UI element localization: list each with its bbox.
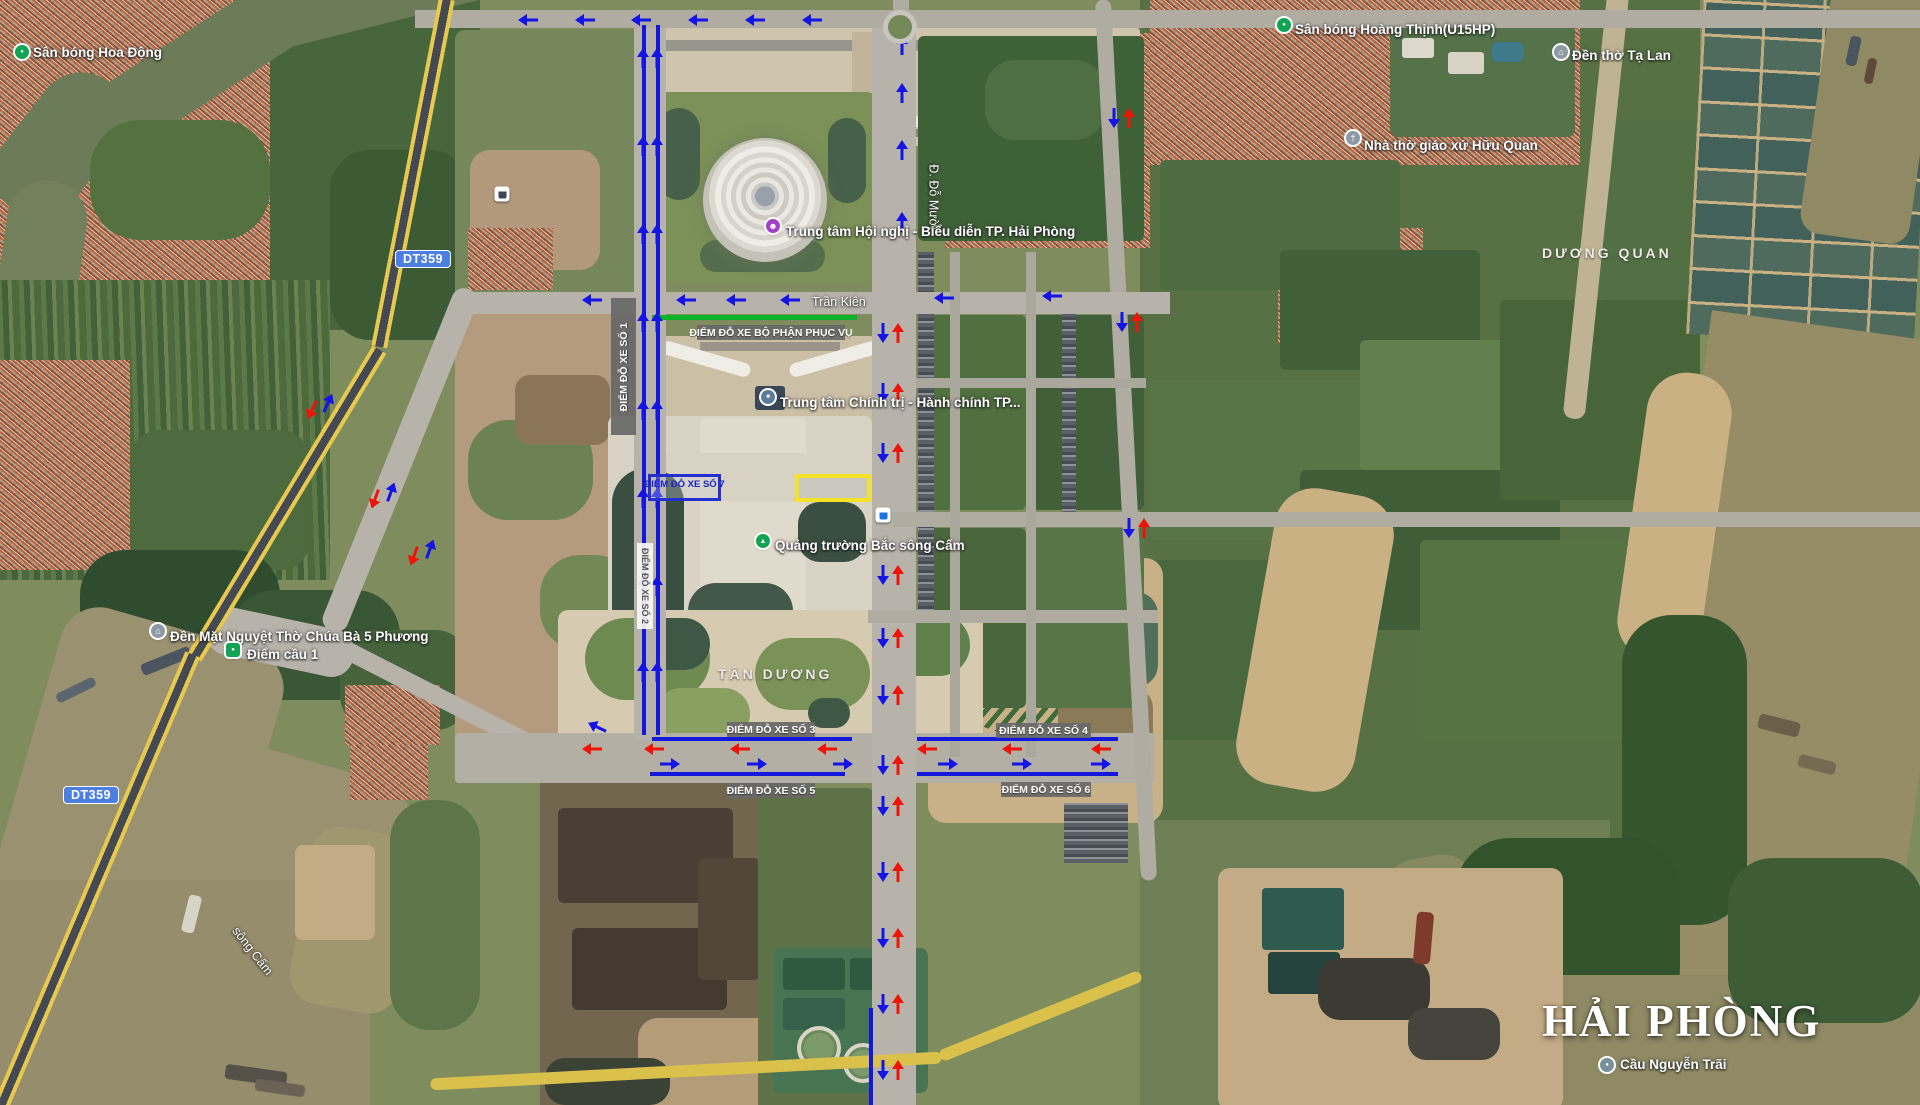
traffic-arrow-blue <box>1122 517 1136 539</box>
poi-label[interactable]: Quảng trường Bắc sông Cấm <box>775 538 965 553</box>
traffic-arrow-blue <box>876 322 890 344</box>
traffic-arrow-blue <box>650 661 664 683</box>
traffic-arrow-blue <box>876 1059 890 1081</box>
watermark-title: HẢI PHÒNG <box>1542 995 1821 1047</box>
traffic-arrow-blue <box>876 795 890 817</box>
traffic-arrow-blue <box>636 223 650 245</box>
traffic-arrow-blue <box>746 757 768 771</box>
traffic-arrow-red <box>891 861 905 883</box>
parking-label: ĐIỂM ĐỖ XE SỐ 7 <box>648 474 721 501</box>
traffic-arrow-blue <box>876 754 890 776</box>
traffic-arrow-red <box>1137 517 1151 539</box>
pin-green-poi-icon[interactable]: ● <box>226 643 240 657</box>
traffic-arrow-red <box>891 322 905 344</box>
traffic-arrow-red <box>891 795 905 817</box>
traffic-arrow-blue <box>650 311 664 333</box>
traffic-arrow-blue <box>876 684 890 706</box>
traffic-arrow-blue <box>650 399 664 421</box>
tree-green-poi-icon[interactable]: ▲ <box>756 534 770 548</box>
traffic-arrow-blue <box>1011 757 1033 771</box>
traffic-arrow-blue <box>876 564 890 586</box>
church-gray-poi-icon[interactable]: † <box>1346 131 1360 145</box>
traffic-arrow-blue <box>801 13 823 27</box>
poi-label[interactable]: Sân bóng Hoàng Thịnh(U15HP) <box>1295 22 1495 37</box>
traffic-arrow-blue <box>630 13 652 27</box>
traffic-arrow-blue <box>636 47 650 69</box>
parking-label: ĐIỂM ĐỖ XE BỘ PHẬN PHỤC VỤ <box>697 325 845 340</box>
traffic-arrow-blue <box>517 13 539 27</box>
traffic-arrow-blue <box>1107 107 1121 129</box>
traffic-arrow-blue <box>876 927 890 949</box>
poi-label[interactable]: Cầu Nguyễn Trãi <box>1620 1057 1727 1072</box>
road-name-label: Trần Kiên <box>812 295 866 309</box>
route-line-blue <box>656 25 660 735</box>
traffic-arrow-red <box>581 742 603 756</box>
parking-label: ĐIỂM ĐỖ XE SỐ 5 <box>727 783 815 798</box>
traffic-arrow-red <box>816 742 838 756</box>
traffic-arrow-red <box>891 684 905 706</box>
poi-label[interactable]: Sân bóng Hoa Động <box>33 45 162 60</box>
traffic-arrow-red <box>891 993 905 1015</box>
traffic-arrow-blue <box>1115 311 1129 333</box>
traffic-arrow-blue <box>650 135 664 157</box>
traffic-arrow-blue <box>779 293 801 307</box>
traffic-arrow-red <box>916 742 938 756</box>
traffic-arrow-red <box>729 742 751 756</box>
traffic-arrow-blue <box>636 311 650 333</box>
route-line-blue <box>869 1008 873 1105</box>
poi-label[interactable]: Điểm cầu 1 <box>247 647 318 662</box>
route-line-blue <box>650 772 845 776</box>
route-line-blue <box>917 772 1118 776</box>
roundabout <box>883 10 917 44</box>
traffic-arrow-blue <box>895 139 909 161</box>
traffic-arrow-blue <box>636 135 650 157</box>
traffic-arrow-blue <box>584 716 610 738</box>
road-badge: DT359 <box>63 786 119 804</box>
traffic-arrow-blue <box>659 757 681 771</box>
bus-glyph <box>879 511 887 520</box>
dot-green-poi-icon[interactable]: ● <box>1277 18 1291 32</box>
parking-label: ĐIỂM ĐỖ XE SỐ 1 <box>611 298 636 435</box>
poi-label[interactable]: Trung tâm Chính trị - Hành chính TP... <box>780 395 1021 410</box>
traffic-arrow-red <box>891 1059 905 1081</box>
traffic-arrow-blue <box>574 13 596 27</box>
satellite-map-view[interactable]: ĐIỂM ĐỖ XE SỐ 1ĐIỂM ĐỖ XE SỐ 2ĐIỂM ĐỖ XE… <box>0 0 1920 1105</box>
dot-green-poi-icon[interactable]: ● <box>15 45 29 59</box>
traffic-arrow-blue <box>420 536 441 561</box>
bus-stop-icon[interactable] <box>495 187 510 202</box>
poi-label[interactable]: Trung tâm Hội nghị - Biểu diễn TP. Hải P… <box>786 224 1075 239</box>
traffic-arrow-blue <box>381 479 402 504</box>
road-badge: DT359 <box>395 250 451 268</box>
traffic-arrow-blue <box>1041 289 1063 303</box>
parking-label: ĐIỂM ĐỖ XE SỐ 3 <box>727 722 815 737</box>
traffic-arrow-blue <box>581 293 603 307</box>
traffic-arrow-red <box>1090 742 1112 756</box>
traffic-arrow-red <box>891 627 905 649</box>
locality-label: DƯƠNG QUAN <box>1542 245 1672 261</box>
poi-label[interactable]: Đền Mặt Nguyệt Thờ Chúa Bà 5 Phương <box>170 629 428 644</box>
traffic-arrow-blue <box>1090 757 1112 771</box>
traffic-arrow-blue <box>675 293 697 307</box>
traffic-arrow-blue <box>876 627 890 649</box>
road-name-label: sông Cấm <box>229 924 275 978</box>
traffic-arrow-red <box>891 442 905 464</box>
traffic-arrow-blue <box>937 757 959 771</box>
locality-label: TÂN DƯƠNG <box>718 666 832 682</box>
traffic-arrow-blue <box>650 223 664 245</box>
service-route-line-green <box>652 315 857 320</box>
parking-label-text: ĐIỂM ĐỖ XE SỐ 2 <box>640 548 650 624</box>
bus-glyph <box>498 190 506 199</box>
traffic-arrow-blue <box>687 13 709 27</box>
bus-stop-icon[interactable] <box>876 508 891 523</box>
traffic-arrow-blue <box>317 390 339 416</box>
parking-label: ĐIỂM ĐỖ XE SỐ 2 <box>637 543 653 629</box>
poi-label[interactable]: Nhà thờ giáo xứ Hữu Quan <box>1364 138 1538 153</box>
poi-label[interactable]: Đền thờ Tạ Lan <box>1572 48 1671 63</box>
traffic-arrow-blue <box>636 399 650 421</box>
traffic-arrow-blue <box>744 13 766 27</box>
building-slate-poi-icon[interactable]: ■ <box>761 390 775 404</box>
traffic-arrow-blue <box>895 82 909 104</box>
highlight-rect-yellow <box>795 474 871 502</box>
traffic-arrow-blue <box>876 861 890 883</box>
traffic-arrow-blue <box>725 293 747 307</box>
traffic-arrow-red <box>891 564 905 586</box>
traffic-arrow-red <box>891 754 905 776</box>
parking-label: ĐIỂM ĐỖ XE SỐ 4 <box>996 723 1091 738</box>
traffic-arrow-blue <box>636 661 650 683</box>
traffic-arrow-red <box>1001 742 1023 756</box>
parking-label-text: ĐIỂM ĐỖ XE SỐ 1 <box>618 322 630 411</box>
parking-label: ĐIỂM ĐỖ XE SỐ 6 <box>1001 782 1091 797</box>
traffic-arrow-red <box>643 742 665 756</box>
map-annotations: ĐIỂM ĐỖ XE SỐ 1ĐIỂM ĐỖ XE SỐ 2ĐIỂM ĐỖ XE… <box>0 0 1920 1105</box>
traffic-arrow-blue <box>933 291 955 305</box>
traffic-arrow-blue <box>876 993 890 1015</box>
traffic-arrow-red <box>1122 107 1136 129</box>
traffic-arrow-red <box>891 927 905 949</box>
traffic-arrow-blue <box>650 47 664 69</box>
traffic-arrow-red <box>1130 311 1144 333</box>
traffic-arrow-blue <box>876 442 890 464</box>
road-name-label: Đ. Đỗ Mười <box>927 164 941 229</box>
dot-gray-poi-icon[interactable]: ● <box>1600 1058 1614 1072</box>
temple-gray-poi-icon[interactable]: ⌂ <box>151 624 165 638</box>
theater-purple-poi-icon[interactable]: ☻ <box>766 219 780 233</box>
route-line-blue <box>652 737 852 741</box>
traffic-arrow-blue <box>832 757 854 771</box>
temple-gray-poi-icon[interactable]: ⌂ <box>1554 45 1568 59</box>
